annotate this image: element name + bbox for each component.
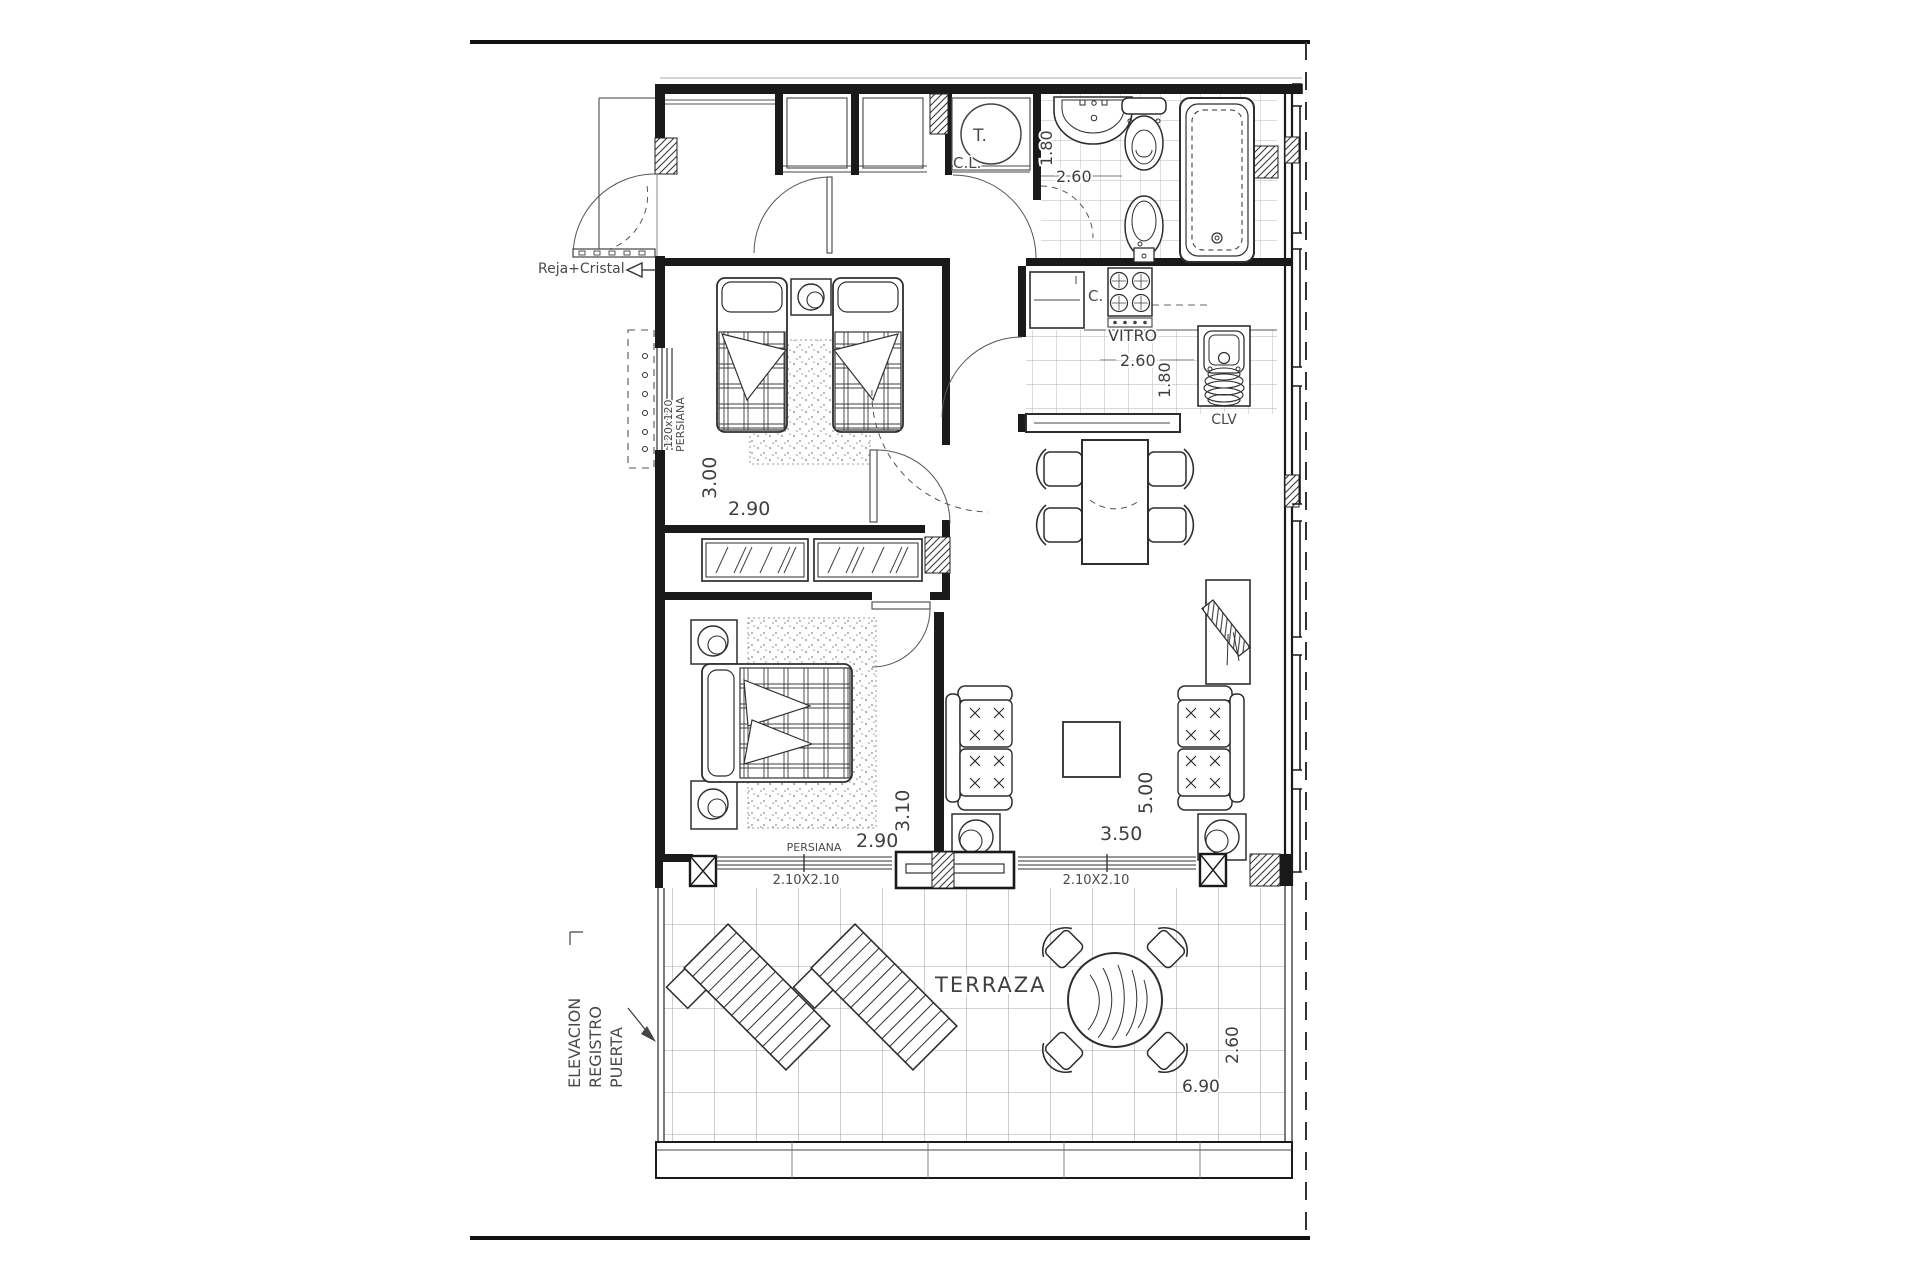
hall-door-arc <box>754 177 830 253</box>
water-heater-label: T. <box>972 126 987 146</box>
sofa-left <box>946 686 1012 810</box>
kitchen-door-arc <box>942 337 1022 417</box>
living-room: 5.00 3.50 <box>946 580 1252 860</box>
bedroom2-door-leaf <box>870 450 877 522</box>
living-width-dim: 3.50 <box>1100 823 1142 845</box>
living-depth-dim: 5.00 <box>1135 772 1157 814</box>
bedroom2-width-dim: 2.90 <box>728 498 770 520</box>
terrace-depth-dim: 2.60 <box>1223 1026 1243 1064</box>
bedroom1-width-dim: 2.90 <box>856 830 898 852</box>
bedroom1-depth-dim: 3.10 <box>892 790 914 832</box>
floor-plan-sheet: Reja+Cristal T. C.L. <box>0 0 1920 1280</box>
bedroom2-window: 120x120 PERSIANA <box>628 330 687 468</box>
nightstand-bottom <box>691 781 737 829</box>
water-heater-room: T. C.L. <box>952 98 1030 172</box>
bathtub <box>1180 98 1254 262</box>
terrace-width-dim: 6.90 <box>1182 1077 1220 1097</box>
note-arrow-icon <box>641 1026 656 1042</box>
nightstand-between <box>791 279 831 315</box>
window-right-size: 2.10X2.10 <box>1063 873 1130 888</box>
dining-set <box>1037 440 1194 564</box>
kitchen-c-label: C. <box>1088 287 1103 305</box>
center-pier <box>896 852 1014 888</box>
entry-door-arc-dashed <box>599 186 648 252</box>
bedroom2-door-arc <box>877 450 950 523</box>
coffee-table <box>1063 722 1120 777</box>
floor-plan-svg: Reja+Cristal T. C.L. <box>0 0 1920 1280</box>
tv-unit <box>1190 580 1252 684</box>
reja-cristal-callout: Reja+Cristal <box>538 261 656 277</box>
corner-post-left <box>690 856 716 886</box>
twin-bed-1 <box>717 278 787 432</box>
clv-label: CLV <box>1211 412 1237 428</box>
bathroom-door-arc <box>953 175 1036 258</box>
bathroom-width-dim: 1.80 <box>1037 130 1056 166</box>
elevation-note: ELEVACION REGISTRO PUERTA <box>565 932 656 1088</box>
cooktop <box>1108 268 1152 327</box>
kitchen-sink-unit <box>1198 326 1250 406</box>
bedroom1-door-arc <box>872 609 930 667</box>
cl-label: C.L. <box>953 154 981 172</box>
dining-chair <box>1037 505 1082 545</box>
vitro-label: VITRO <box>1108 326 1157 345</box>
bedroom1-door-leaf <box>872 602 930 609</box>
window-left-size: 2.10X2.10 <box>773 873 840 888</box>
entry-gate-leaf <box>573 249 655 257</box>
twin-bed-2 <box>833 278 903 432</box>
shutter-word-label: PERSIANA <box>674 397 687 452</box>
porch-edge <box>599 98 655 254</box>
dining-chair <box>1148 505 1193 545</box>
nightstand-top <box>691 620 737 664</box>
terraza-label: TERRAZA <box>934 973 1047 997</box>
toilet <box>1122 98 1166 170</box>
bathroom-length-dim: 2.60 <box>1056 167 1092 186</box>
sofa-right <box>1178 686 1244 810</box>
entry: Reja+Cristal <box>538 98 657 277</box>
reja-cristal-label: Reja+Cristal <box>538 261 625 277</box>
note-line-1: ELEVACION <box>565 998 584 1088</box>
wardrobes <box>702 539 922 581</box>
note-line-2: REGISTRO <box>586 1006 605 1088</box>
shutter-label: 120x120 PERSIANA <box>662 397 687 452</box>
double-bed <box>702 664 852 782</box>
shutter-box <box>628 330 654 468</box>
persiana-bottom-label: PERSIANA <box>787 841 842 854</box>
hall-closets <box>665 98 927 172</box>
window-right: 2.10X2.10 <box>1018 854 1196 888</box>
kitchen-length-dim: 2.60 <box>1120 351 1156 370</box>
round-table <box>1068 953 1162 1047</box>
hall-door-leaf <box>827 177 832 253</box>
dining-chair <box>1148 449 1193 489</box>
closet-2 <box>863 98 923 168</box>
wardrobe-2 <box>814 539 922 581</box>
terrace-parapet <box>656 1142 1292 1178</box>
wardrobe-1 <box>702 539 808 581</box>
dining-chair <box>1037 449 1082 489</box>
direction-arrow-icon <box>627 263 642 277</box>
entry-door-arc <box>573 174 655 256</box>
bedroom2-depth-dim: 3.00 <box>699 457 721 499</box>
closet-1 <box>787 98 847 168</box>
kitchen-width-dim: 1.80 <box>1155 362 1174 398</box>
note-line-3: PUERTA <box>607 1027 626 1088</box>
